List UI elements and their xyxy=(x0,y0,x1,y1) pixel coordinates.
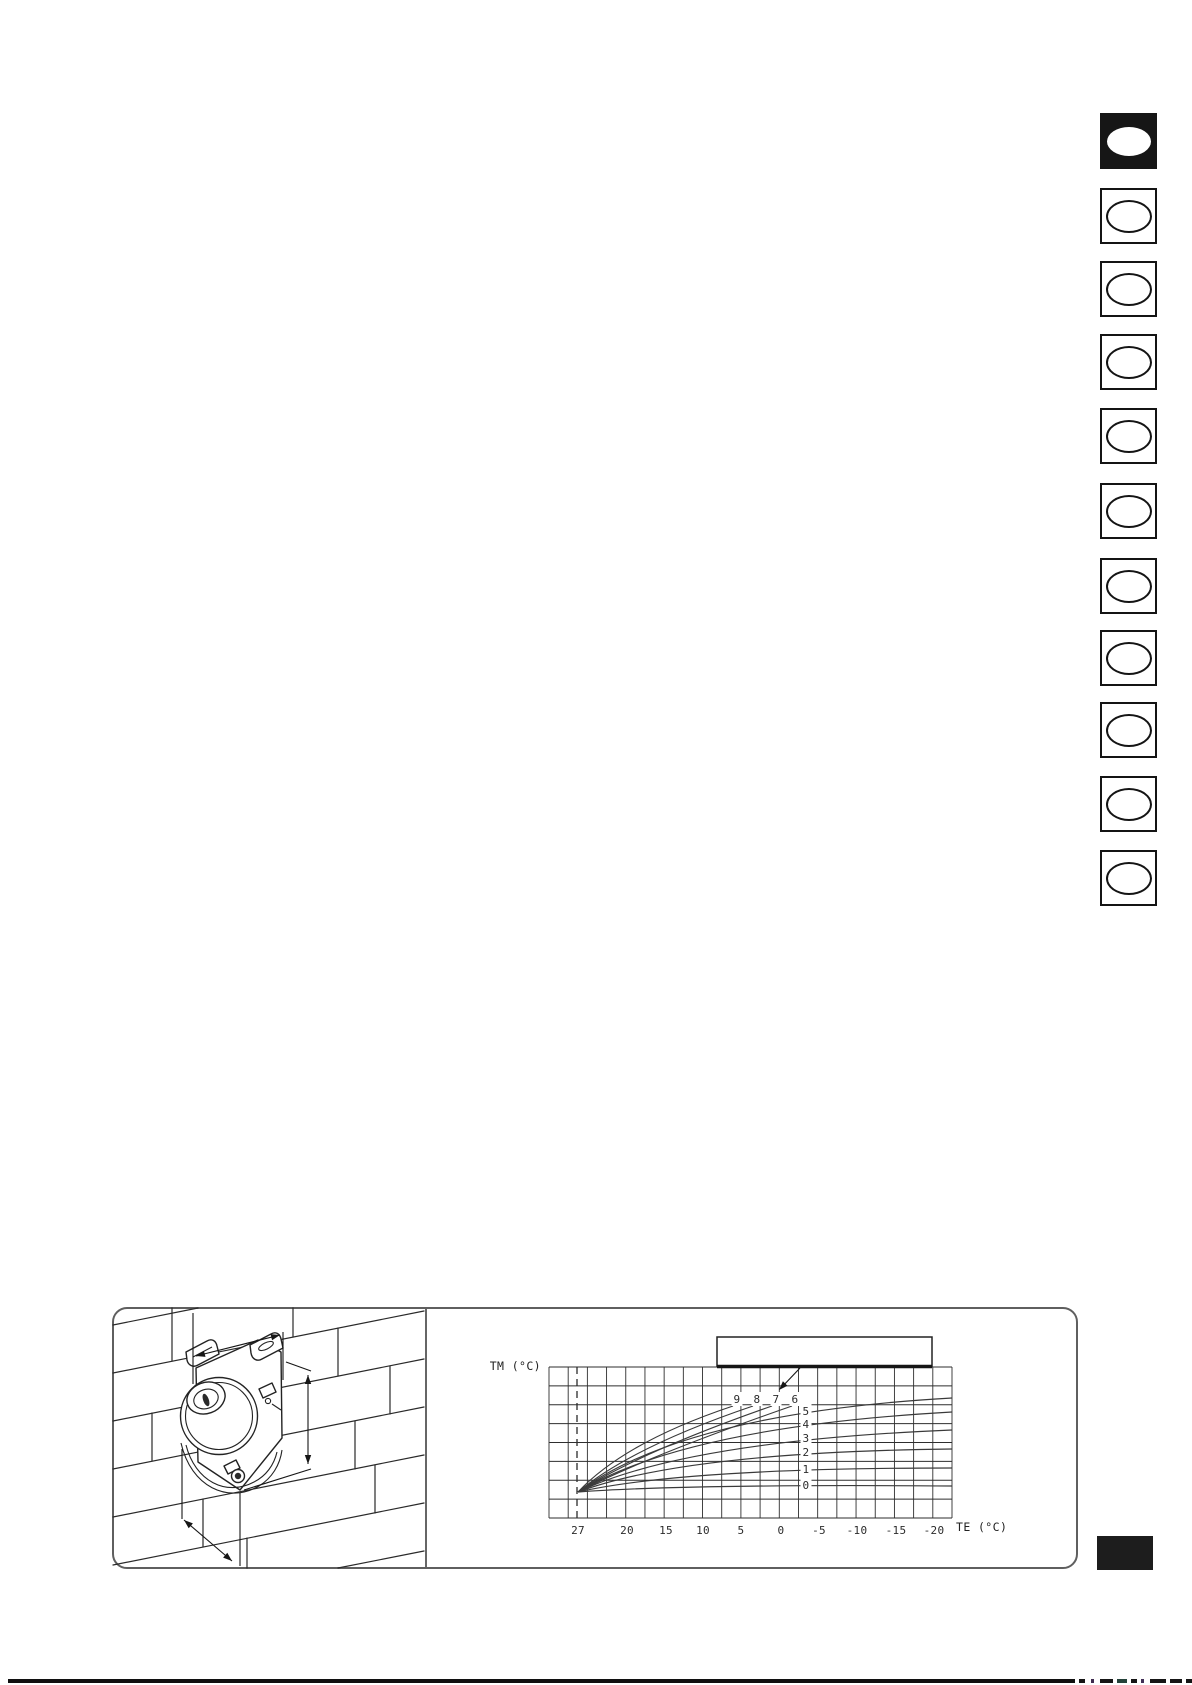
curve-label: 4 xyxy=(803,1418,810,1431)
x-tick-label: -10 xyxy=(847,1524,868,1537)
curve-label: 1 xyxy=(803,1463,810,1476)
x-axis-label: TE (°C) xyxy=(956,1520,1007,1534)
curve-label: 9 xyxy=(734,1393,741,1406)
section-marker-tab xyxy=(1097,1536,1153,1570)
curve-callout-box xyxy=(717,1337,932,1366)
x-tick-label: 10 xyxy=(696,1524,710,1537)
curve-label: 6 xyxy=(792,1393,799,1406)
curve-label: 5 xyxy=(803,1405,810,1418)
curve-label: 0 xyxy=(803,1479,810,1492)
x-tick-label: 0 xyxy=(778,1524,785,1537)
y-axis-label: TM (°C) xyxy=(490,1359,541,1373)
x-tick-label: -5 xyxy=(812,1524,826,1537)
x-tick-label: -20 xyxy=(924,1524,945,1537)
x-tick-label: 5 xyxy=(738,1524,745,1537)
curve-label: 7 xyxy=(773,1393,780,1406)
screw-icon xyxy=(235,1473,241,1479)
curve-label: 2 xyxy=(803,1446,810,1459)
x-tick-label: 20 xyxy=(620,1524,634,1537)
installation-figure: 98765432102720151050-5-10-15-20 TM (°C) … xyxy=(0,0,1192,1685)
x-tick-label: -15 xyxy=(886,1524,907,1537)
footer-rule xyxy=(8,1679,1075,1683)
curve-label: 3 xyxy=(803,1432,810,1445)
x-tick-label: 27 xyxy=(571,1524,585,1537)
curve-label: 8 xyxy=(754,1393,761,1406)
manual-page: 98765432102720151050-5-10-15-20 TM (°C) … xyxy=(0,0,1192,1685)
x-tick-label: 15 xyxy=(659,1524,673,1537)
